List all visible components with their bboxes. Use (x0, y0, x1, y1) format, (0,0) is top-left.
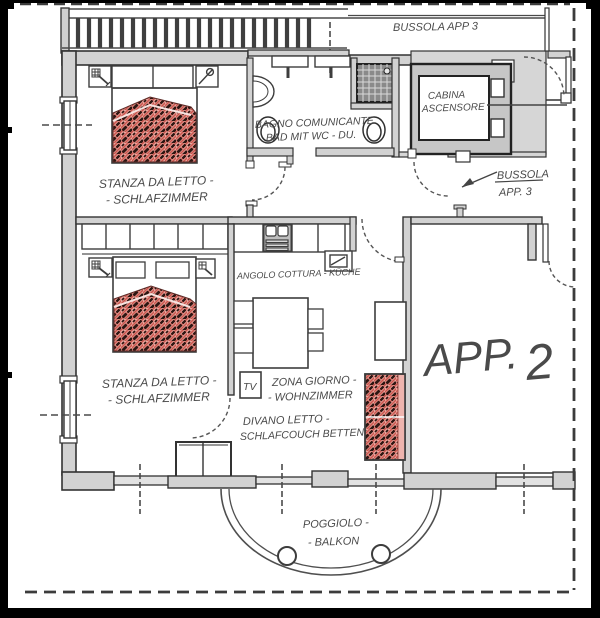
svg-text:APP.: APP. (419, 329, 521, 386)
svg-text:- BALKON: - BALKON (308, 535, 360, 549)
svg-text:ASCENSORE: ASCENSORE (421, 102, 485, 115)
svg-text:POGGIOLO -: POGGIOLO - (303, 517, 370, 531)
svg-text:BUSSOLA APP 3: BUSSOLA APP 3 (393, 21, 479, 34)
svg-text:TV: TV (243, 381, 257, 393)
svg-text:2: 2 (522, 333, 556, 391)
svg-text:CABINA: CABINA (428, 90, 466, 102)
svg-text:APP. 3: APP. 3 (498, 186, 533, 199)
